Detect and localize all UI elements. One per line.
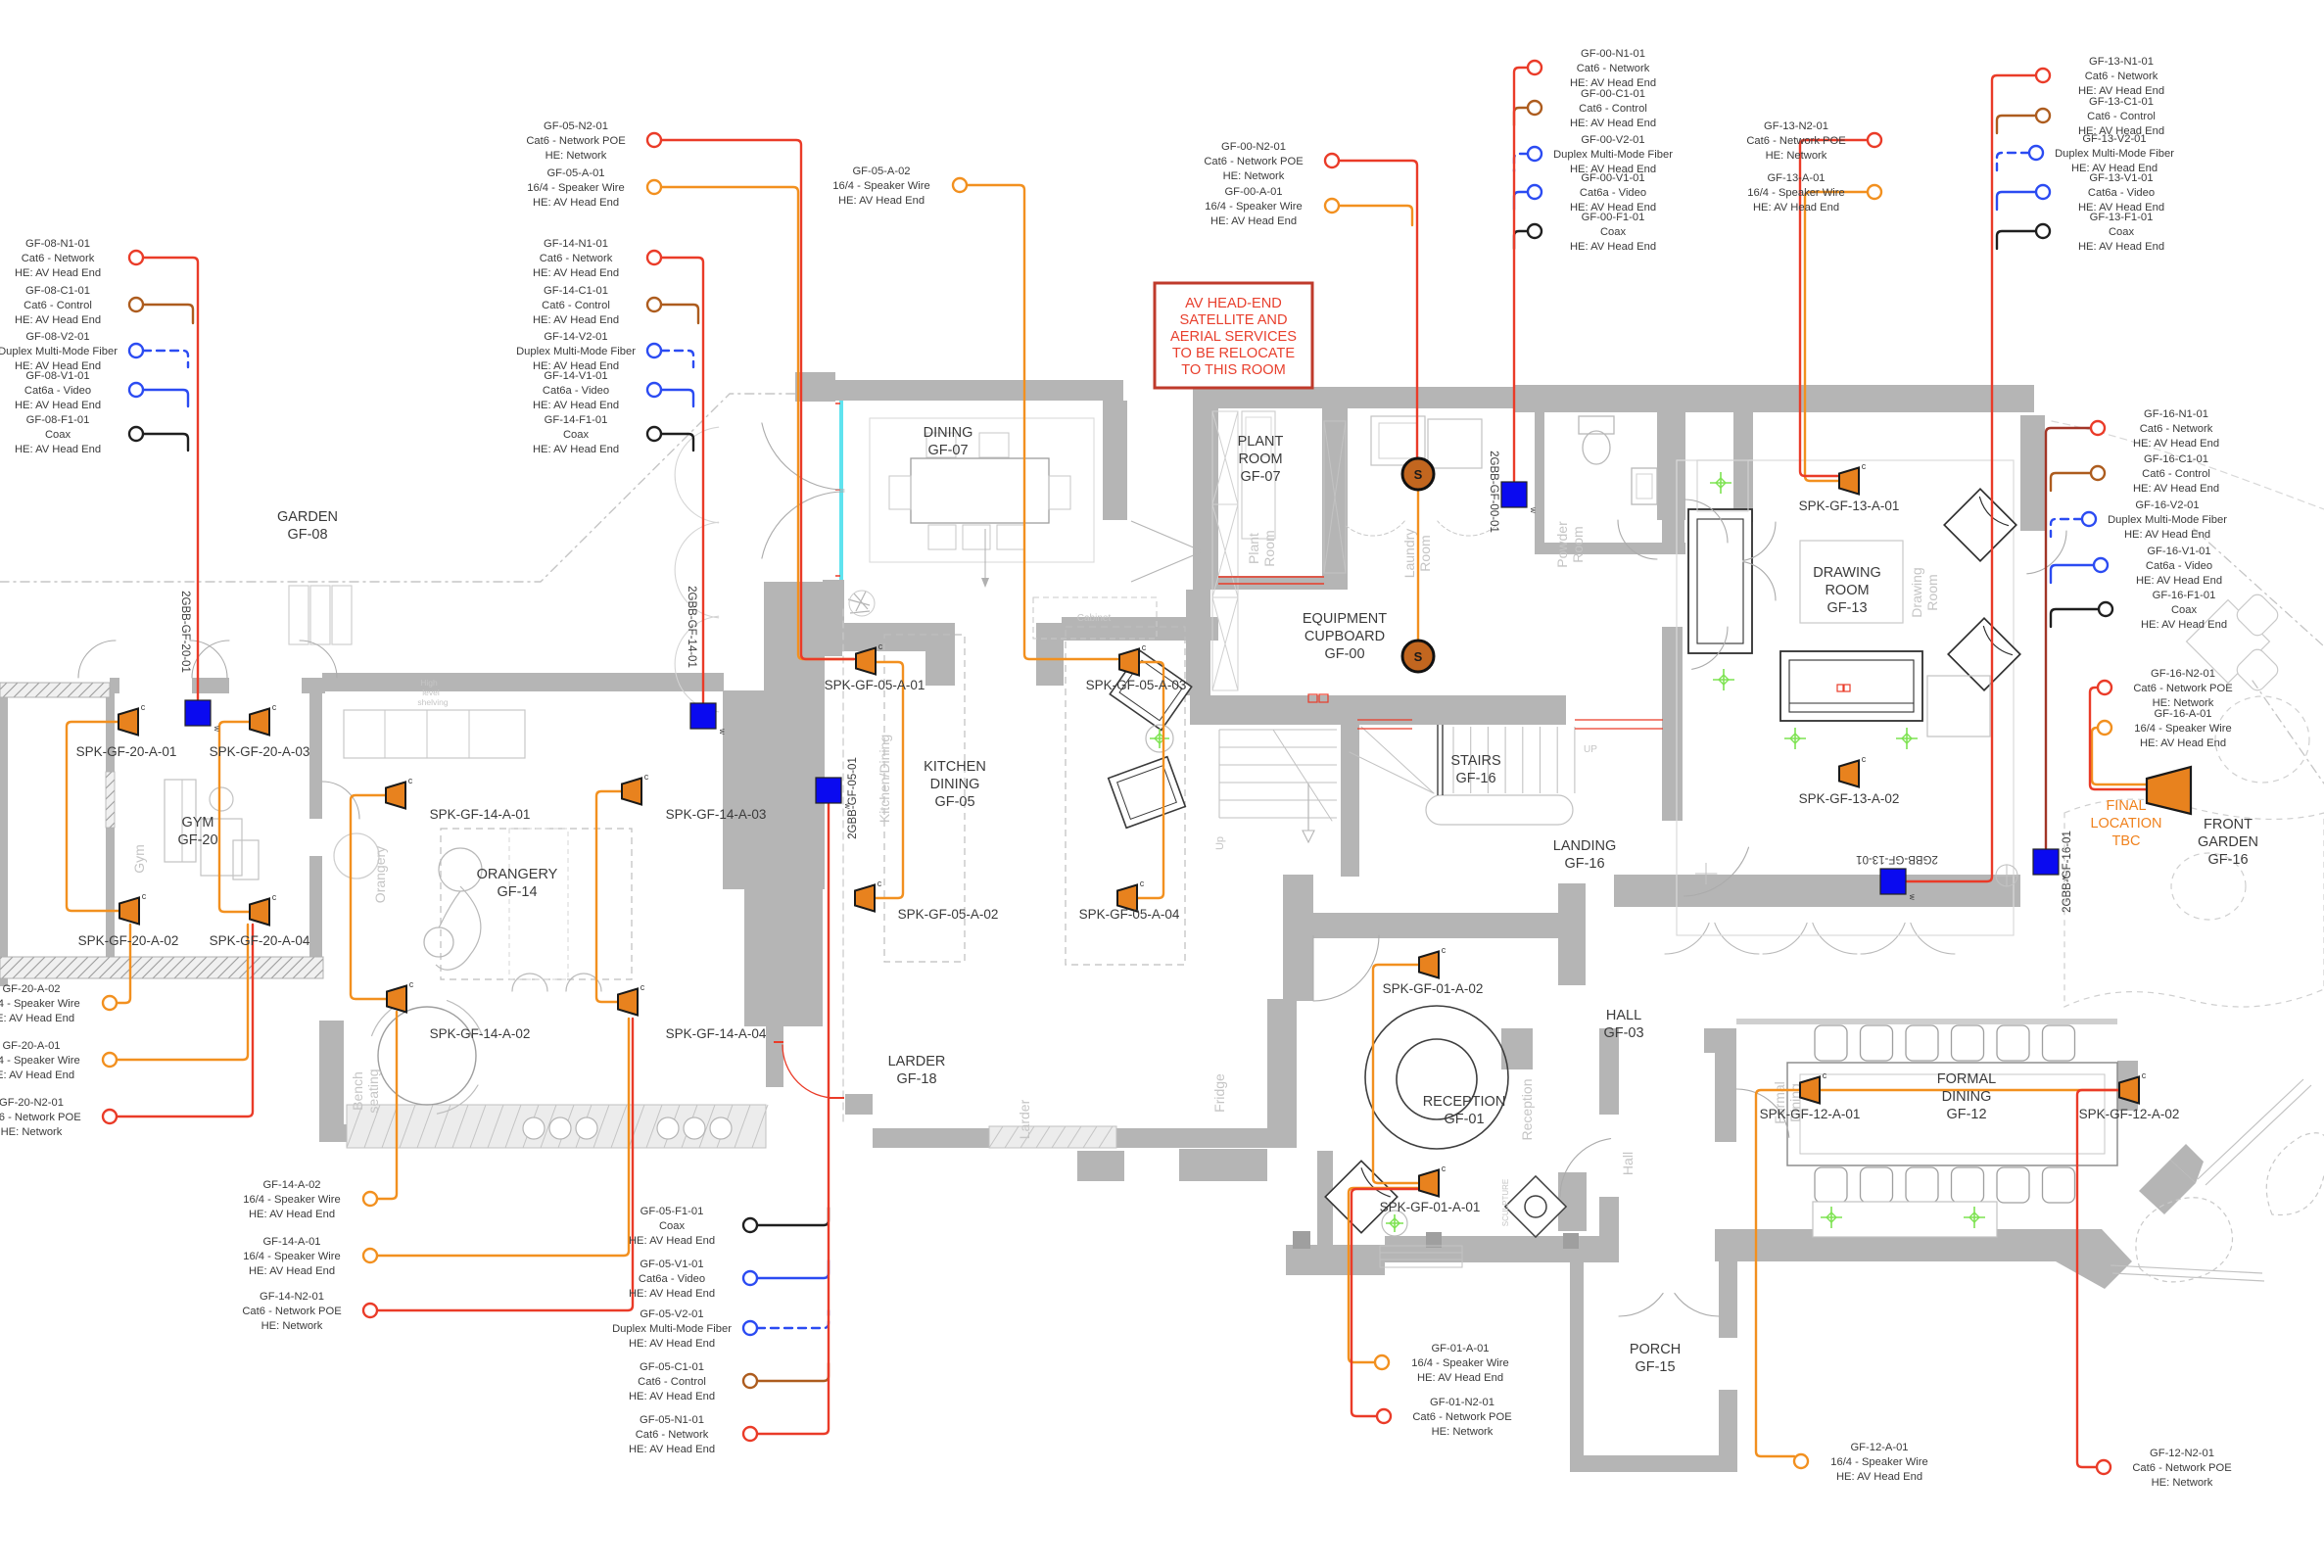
svg-text:HE: Network: HE: Network <box>1432 1426 1494 1438</box>
svg-text:Cat6 - Network: Cat6 - Network <box>2085 71 2158 82</box>
svg-text:GF-12: GF-12 <box>1946 1107 1986 1122</box>
svg-text:HE: Network: HE: Network <box>261 1320 323 1332</box>
svg-text:GF-20-A-01: GF-20-A-01 <box>2 1040 60 1052</box>
svg-text:FORMAL: FORMAL <box>1937 1071 1996 1087</box>
svg-text:DINING: DINING <box>930 777 980 792</box>
svg-text:GF-07: GF-07 <box>927 443 968 458</box>
svg-text:High: High <box>420 678 438 688</box>
svg-text:HE: Network: HE: Network <box>545 150 607 162</box>
svg-text:HE: AV Head End: HE: AV Head End <box>1836 1471 1922 1483</box>
svg-text:HE: Network: HE: Network <box>1 1126 63 1138</box>
svg-text:Plant: Plant <box>1246 533 1261 564</box>
svg-text:Cat6 - Control: Cat6 - Control <box>542 300 610 311</box>
svg-text:SPK-GF-01-A-02: SPK-GF-01-A-02 <box>1383 981 1484 996</box>
svg-text:GF-05-C1-01: GF-05-C1-01 <box>640 1361 704 1373</box>
svg-text:LANDING: LANDING <box>1553 838 1616 854</box>
svg-text:Kitchen/Dining: Kitchen/Dining <box>877 735 892 823</box>
svg-text:2GBB-GF-20-01: 2GBB-GF-20-01 <box>179 591 191 673</box>
svg-text:SPK-GF-05-A-01: SPK-GF-05-A-01 <box>825 678 925 692</box>
svg-text:GF-16: GF-16 <box>1455 771 1495 786</box>
svg-text:w: w <box>1529 506 1538 513</box>
svg-text:LARDER: LARDER <box>888 1054 946 1069</box>
svg-text:SATELLITE AND: SATELLITE AND <box>1179 312 1287 328</box>
svg-text:CUPBOARD: CUPBOARD <box>1304 629 1385 644</box>
svg-text:Cat6a - Video: Cat6a - Video <box>543 385 609 397</box>
svg-text:c: c <box>644 772 649 782</box>
svg-text:GF-14: GF-14 <box>497 884 537 900</box>
svg-text:w: w <box>718 728 727 735</box>
svg-text:GF-14-C1-01: GF-14-C1-01 <box>544 285 608 297</box>
svg-text:Cat6 - Control: Cat6 - Control <box>638 1376 706 1388</box>
svg-text:Bench: Bench <box>350 1071 365 1111</box>
svg-text:w: w <box>1908 893 1917 900</box>
svg-text:HE: AV Head End: HE: AV Head End <box>533 314 619 326</box>
svg-text:HE: AV Head End: HE: AV Head End <box>249 1265 335 1277</box>
svg-text:Hall: Hall <box>1620 1152 1636 1175</box>
svg-text:16/4 - Speaker Wire: 16/4 - Speaker Wire <box>243 1251 341 1262</box>
svg-text:Cat6 - Network POE: Cat6 - Network POE <box>2132 1462 2231 1474</box>
svg-text:shelving: shelving <box>417 697 448 707</box>
svg-text:2GBB-GF-13-01: 2GBB-GF-13-01 <box>1856 853 1938 865</box>
svg-text:HE: AV Head End: HE: AV Head End <box>0 1013 74 1024</box>
svg-text:c: c <box>272 892 277 902</box>
svg-text:HE: AV Head End: HE: AV Head End <box>1753 202 1839 214</box>
svg-text:Laundry: Laundry <box>1401 529 1417 579</box>
svg-text:16/4 - Speaker Wire: 16/4 - Speaker Wire <box>1830 1456 1928 1468</box>
svg-text:DINING: DINING <box>924 425 973 441</box>
svg-text:GF-16-N1-01: GF-16-N1-01 <box>2144 408 2208 420</box>
svg-text:c: c <box>640 982 645 992</box>
svg-text:GF-05-N1-01: GF-05-N1-01 <box>640 1414 704 1426</box>
svg-text:STAIRS: STAIRS <box>1450 753 1500 769</box>
svg-text:AV HEAD-END: AV HEAD-END <box>1185 296 1282 311</box>
svg-text:Cat6 - Network: Cat6 - Network <box>22 253 95 264</box>
svg-text:GF-18: GF-18 <box>896 1071 936 1087</box>
svg-text:GF-13-N2-01: GF-13-N2-01 <box>1764 120 1828 132</box>
svg-text:AERIAL SERVICES: AERIAL SERVICES <box>1170 329 1297 345</box>
svg-text:GF-14-N1-01: GF-14-N1-01 <box>544 238 608 250</box>
svg-text:c: c <box>1442 1164 1447 1173</box>
svg-text:seating: seating <box>365 1069 381 1113</box>
svg-text:GF-13: GF-13 <box>1826 600 1867 616</box>
svg-text:S: S <box>1414 649 1423 664</box>
svg-text:16/4 - Speaker Wire: 16/4 - Speaker Wire <box>2134 723 2232 735</box>
svg-text:GF-00-N2-01: GF-00-N2-01 <box>1221 141 1286 153</box>
svg-text:GARDEN: GARDEN <box>277 509 338 525</box>
svg-text:c: c <box>409 979 414 989</box>
svg-text:GF-05-F1-01: GF-05-F1-01 <box>640 1206 704 1217</box>
svg-text:SPK-GF-05-A-04: SPK-GF-05-A-04 <box>1079 907 1180 922</box>
svg-text:Cat6 - Control: Cat6 - Control <box>2087 111 2156 122</box>
svg-text:GF-16: GF-16 <box>2207 852 2248 868</box>
svg-text:Coax: Coax <box>563 429 590 441</box>
svg-text:TBC: TBC <box>2112 833 2141 849</box>
svg-text:c: c <box>142 891 147 901</box>
svg-text:GF-00-N1-01: GF-00-N1-01 <box>1581 48 1645 60</box>
svg-text:GF-16-C1-01: GF-16-C1-01 <box>2144 453 2208 465</box>
svg-text:GF-16-V2-01: GF-16-V2-01 <box>2135 499 2199 511</box>
svg-text:HE: AV Head End: HE: AV Head End <box>533 400 619 411</box>
svg-text:PLANT: PLANT <box>1238 434 1284 450</box>
svg-text:GF-08-N1-01: GF-08-N1-01 <box>25 238 90 250</box>
svg-text:Cat6a - Video: Cat6a - Video <box>2088 187 2155 199</box>
svg-text:GF-01-A-01: GF-01-A-01 <box>1431 1343 1489 1354</box>
svg-text:16/4 - Speaker Wire: 16/4 - Speaker Wire <box>527 182 625 194</box>
svg-text:Cat6 - Control: Cat6 - Control <box>1579 103 1647 115</box>
svg-text:HE: AV Head End: HE: AV Head End <box>629 1391 715 1402</box>
svg-text:SPK-GF-14-A-01: SPK-GF-14-A-01 <box>430 807 531 822</box>
svg-text:HE: AV Head End: HE: AV Head End <box>1570 241 1656 253</box>
svg-text:GF-14-V1-01: GF-14-V1-01 <box>544 370 607 382</box>
svg-text:HE: AV Head End: HE: AV Head End <box>1210 215 1297 227</box>
svg-text:16/4 - Speaker Wire: 16/4 - Speaker Wire <box>0 998 80 1010</box>
svg-text:Coax: Coax <box>45 429 71 441</box>
svg-text:SPK-GF-14-A-03: SPK-GF-14-A-03 <box>666 807 767 822</box>
svg-text:HE: AV Head End: HE: AV Head End <box>2124 529 2210 541</box>
svg-text:GF-20-A-02: GF-20-A-02 <box>2 983 60 995</box>
svg-text:Cat6a - Video: Cat6a - Video <box>639 1273 705 1285</box>
svg-text:GF-14-F1-01: GF-14-F1-01 <box>545 414 608 426</box>
svg-text:HE: AV Head End: HE: AV Head End <box>629 1235 715 1247</box>
svg-text:c: c <box>1442 945 1447 955</box>
svg-text:HE: AV Head End: HE: AV Head End <box>15 267 101 279</box>
svg-text:HE: AV Head End: HE: AV Head End <box>2133 438 2219 450</box>
svg-text:GF-16-A-01: GF-16-A-01 <box>2154 708 2211 720</box>
svg-text:GF-08-C1-01: GF-08-C1-01 <box>25 285 90 297</box>
svg-text:HE: AV Head End: HE: AV Head End <box>533 444 619 455</box>
svg-text:16/4 - Speaker Wire: 16/4 - Speaker Wire <box>0 1055 80 1067</box>
svg-text:2GBB-GF-00-01: 2GBB-GF-00-01 <box>1488 451 1499 533</box>
svg-text:GF-05-A-02: GF-05-A-02 <box>852 166 910 177</box>
svg-text:EQUIPMENT: EQUIPMENT <box>1303 611 1387 627</box>
svg-text:16/4 - Speaker Wire: 16/4 - Speaker Wire <box>1411 1357 1509 1369</box>
svg-text:GF-00-V1-01: GF-00-V1-01 <box>1581 172 1644 184</box>
svg-text:SPK-GF-01-A-01: SPK-GF-01-A-01 <box>1380 1200 1481 1214</box>
svg-text:ROOM: ROOM <box>1238 451 1282 467</box>
svg-text:GF-15: GF-15 <box>1635 1359 1675 1375</box>
svg-text:SCULPTURE: SCULPTURE <box>1501 1179 1510 1226</box>
svg-text:HE: AV Head End: HE: AV Head End <box>1417 1372 1503 1384</box>
svg-text:Coax: Coax <box>1600 226 1627 238</box>
svg-text:GF-16-V1-01: GF-16-V1-01 <box>2147 546 2210 557</box>
svg-text:HE: AV Head End: HE: AV Head End <box>629 1288 715 1300</box>
svg-text:KITCHEN: KITCHEN <box>924 759 986 775</box>
svg-text:HE: AV Head End: HE: AV Head End <box>1570 118 1656 129</box>
svg-text:GF-20: GF-20 <box>177 832 217 848</box>
svg-text:GF-01: GF-01 <box>1444 1112 1484 1127</box>
svg-text:HE: AV Head End: HE: AV Head End <box>2141 619 2227 631</box>
svg-text:HE: AV Head End: HE: AV Head End <box>2136 575 2222 587</box>
svg-text:SPK-GF-20-A-02: SPK-GF-20-A-02 <box>78 933 179 948</box>
svg-text:Room: Room <box>1261 530 1277 566</box>
svg-text:Room: Room <box>1417 535 1433 571</box>
svg-text:LOCATION: LOCATION <box>2090 816 2161 832</box>
svg-text:GF-13-C1-01: GF-13-C1-01 <box>2089 96 2154 108</box>
svg-text:HE: AV Head End: HE: AV Head End <box>2078 241 2164 253</box>
svg-text:Coax: Coax <box>2171 604 2198 616</box>
svg-text:Cat6a - Video: Cat6a - Video <box>2146 560 2212 572</box>
svg-text:Reception: Reception <box>1519 1078 1535 1140</box>
svg-text:GF-00-V2-01: GF-00-V2-01 <box>1581 134 1644 146</box>
svg-text:HE: AV Head End: HE: AV Head End <box>533 197 619 209</box>
svg-text:SPK-GF-14-A-02: SPK-GF-14-A-02 <box>430 1026 531 1041</box>
svg-text:16/4 - Speaker Wire: 16/4 - Speaker Wire <box>1205 201 1303 213</box>
svg-text:c: c <box>2142 1070 2147 1080</box>
svg-text:GARDEN: GARDEN <box>2198 834 2258 850</box>
svg-text:Cat6 - Network: Cat6 - Network <box>1577 63 1650 74</box>
svg-text:SPK-GF-20-A-01: SPK-GF-20-A-01 <box>76 744 177 759</box>
svg-text:c: c <box>408 776 413 785</box>
svg-text:Cat6 - Network: Cat6 - Network <box>636 1429 709 1441</box>
svg-text:Larder: Larder <box>1017 1099 1032 1139</box>
svg-text:Room: Room <box>1570 526 1586 562</box>
svg-text:GF-16: GF-16 <box>1564 856 1604 872</box>
svg-text:DINING: DINING <box>1942 1089 1992 1105</box>
svg-text:HE: AV Head End: HE: AV Head End <box>15 400 101 411</box>
svg-text:DRAWING: DRAWING <box>1813 565 1881 581</box>
svg-text:c: c <box>1140 879 1145 888</box>
svg-text:SPK-GF-05-A-03: SPK-GF-05-A-03 <box>1086 678 1187 692</box>
svg-text:FRONT: FRONT <box>2204 817 2253 832</box>
svg-text:FINAL: FINAL <box>2106 798 2146 814</box>
svg-text:16/4 - Speaker Wire: 16/4 - Speaker Wire <box>243 1194 341 1206</box>
svg-text:RECEPTION: RECEPTION <box>1423 1094 1506 1110</box>
svg-text:16/4 - Speaker Wire: 16/4 - Speaker Wire <box>1747 187 1845 199</box>
svg-text:Cat6 - Control: Cat6 - Control <box>2142 468 2210 480</box>
svg-text:Duplex Multi-Mode Fiber: Duplex Multi-Mode Fiber <box>2108 514 2227 526</box>
svg-text:GF-05-V2-01: GF-05-V2-01 <box>640 1308 703 1320</box>
svg-text:Cat6 - Network POE: Cat6 - Network POE <box>2133 683 2232 694</box>
svg-text:2GBB-GF-16-01: 2GBB-GF-16-01 <box>2062 831 2073 913</box>
svg-text:SPK-GF-13-A-01: SPK-GF-13-A-01 <box>1799 499 1900 513</box>
svg-text:c: c <box>877 879 882 888</box>
svg-text:Cat6 - Network POE: Cat6 - Network POE <box>1746 135 1845 147</box>
svg-text:GF-14-V2-01: GF-14-V2-01 <box>544 331 607 343</box>
svg-text:Cat6 - Control: Cat6 - Control <box>24 300 92 311</box>
svg-text:GF-03: GF-03 <box>1603 1025 1643 1041</box>
svg-text:GF-13-V2-01: GF-13-V2-01 <box>2082 133 2146 145</box>
svg-text:GF-08-V1-01: GF-08-V1-01 <box>25 370 89 382</box>
svg-text:GYM: GYM <box>181 815 213 831</box>
svg-text:Up: Up <box>1214 836 1226 850</box>
svg-text:HE: AV Head End: HE: AV Head End <box>249 1209 335 1220</box>
svg-text:HE: AV Head End: HE: AV Head End <box>629 1444 715 1455</box>
svg-text:GF-13-V1-01: GF-13-V1-01 <box>2089 172 2153 184</box>
svg-text:w: w <box>213 725 221 732</box>
svg-text:Cat6 - Network POE: Cat6 - Network POE <box>242 1306 341 1317</box>
svg-text:Powder: Powder <box>1554 521 1570 568</box>
svg-text:GF-16-F1-01: GF-16-F1-01 <box>2153 590 2216 601</box>
svg-text:GF-14-A-01: GF-14-A-01 <box>262 1236 320 1248</box>
svg-text:GF-08-F1-01: GF-08-F1-01 <box>26 414 90 426</box>
svg-text:Coax: Coax <box>659 1220 686 1232</box>
svg-text:Duplex Multi-Mode Fiber: Duplex Multi-Mode Fiber <box>516 346 636 357</box>
svg-text:c: c <box>1142 642 1147 652</box>
svg-text:GF-13-A-01: GF-13-A-01 <box>1767 172 1825 184</box>
svg-text:c: c <box>1823 1070 1827 1080</box>
svg-text:level: level <box>422 688 440 697</box>
svg-text:GF-01-N2-01: GF-01-N2-01 <box>1430 1397 1494 1408</box>
svg-text:GF-00-F1-01: GF-00-F1-01 <box>1582 212 1645 223</box>
svg-text:SPK-GF-12-A-02: SPK-GF-12-A-02 <box>2079 1107 2180 1121</box>
svg-text:GF-08: GF-08 <box>287 527 327 543</box>
svg-text:Cat6 - Network: Cat6 - Network <box>540 253 613 264</box>
svg-text:SPK-GF-13-A-02: SPK-GF-13-A-02 <box>1799 791 1900 806</box>
svg-text:HE: AV Head End: HE: AV Head End <box>838 195 925 207</box>
svg-text:HE: AV Head End: HE: AV Head End <box>533 267 619 279</box>
svg-text:GF-05-A-01: GF-05-A-01 <box>546 167 604 179</box>
svg-text:GF-14-N2-01: GF-14-N2-01 <box>260 1291 324 1303</box>
svg-text:c: c <box>1862 461 1867 471</box>
svg-text:Duplex Multi-Mode Fiber: Duplex Multi-Mode Fiber <box>1553 149 1673 161</box>
svg-text:GF-05-V1-01: GF-05-V1-01 <box>640 1259 703 1270</box>
svg-text:SPK-GF-20-A-04: SPK-GF-20-A-04 <box>210 933 310 948</box>
svg-text:Cat6a - Video: Cat6a - Video <box>24 385 91 397</box>
svg-text:GF-05-N2-01: GF-05-N2-01 <box>544 120 608 132</box>
svg-text:SPK-GF-05-A-02: SPK-GF-05-A-02 <box>898 907 999 922</box>
svg-text:GF-14-A-02: GF-14-A-02 <box>262 1179 320 1191</box>
svg-text:HE: AV Head End: HE: AV Head End <box>2133 483 2219 495</box>
svg-text:GF-16-N2-01: GF-16-N2-01 <box>2151 668 2215 680</box>
svg-text:2GBB-GF-14-01: 2GBB-GF-14-01 <box>686 586 697 668</box>
svg-text:c: c <box>1862 754 1867 764</box>
svg-text:HE: AV Head End: HE: AV Head End <box>15 444 101 455</box>
svg-text:Cabinet: Cabinet <box>1077 613 1112 624</box>
svg-text:HE: Network: HE: Network <box>1223 170 1285 182</box>
svg-text:SPK-GF-20-A-03: SPK-GF-20-A-03 <box>210 744 310 759</box>
svg-text:TO BE RELOCATE: TO BE RELOCATE <box>1172 346 1295 361</box>
svg-text:GF-00-A-01: GF-00-A-01 <box>1224 186 1282 198</box>
svg-text:c: c <box>141 702 146 712</box>
svg-text:Room: Room <box>1924 574 1940 610</box>
svg-text:Coax: Coax <box>2109 226 2135 238</box>
svg-text:16/4 - Speaker Wire: 16/4 - Speaker Wire <box>832 180 930 192</box>
svg-text:HE: AV Head End: HE: AV Head End <box>2140 737 2226 749</box>
svg-text:Duplex Multi-Mode Fiber: Duplex Multi-Mode Fiber <box>2055 148 2174 160</box>
svg-text:GF-20-N2-01: GF-20-N2-01 <box>0 1097 64 1109</box>
svg-text:Duplex Multi-Mode Fiber: Duplex Multi-Mode Fiber <box>0 346 118 357</box>
svg-text:HE: AV Head End: HE: AV Head End <box>629 1338 715 1350</box>
svg-text:Orangery: Orangery <box>372 846 388 903</box>
svg-text:SPK-GF-12-A-01: SPK-GF-12-A-01 <box>1760 1107 1861 1121</box>
svg-text:ORANGERY: ORANGERY <box>477 867 558 882</box>
svg-text:GF-13-N1-01: GF-13-N1-01 <box>2089 56 2154 68</box>
svg-text:UP: UP <box>1584 744 1597 755</box>
svg-text:Cat6 - Network POE: Cat6 - Network POE <box>0 1112 81 1123</box>
svg-text:Gym: Gym <box>131 844 147 874</box>
svg-text:GF-12-N2-01: GF-12-N2-01 <box>2150 1448 2214 1459</box>
svg-text:GF-13-F1-01: GF-13-F1-01 <box>2090 212 2154 223</box>
svg-text:GF-00: GF-00 <box>1324 646 1364 662</box>
svg-text:TO THIS ROOM: TO THIS ROOM <box>1181 362 1286 378</box>
svg-text:Cat6 - Network POE: Cat6 - Network POE <box>1412 1411 1511 1423</box>
svg-text:SPK-GF-14-A-04: SPK-GF-14-A-04 <box>666 1026 767 1041</box>
svg-text:PORCH: PORCH <box>1630 1342 1681 1357</box>
svg-text:GF-00-C1-01: GF-00-C1-01 <box>1581 88 1645 100</box>
svg-text:2GBB-GF-05-01: 2GBB-GF-05-01 <box>847 757 859 839</box>
svg-text:ROOM: ROOM <box>1825 583 1869 598</box>
svg-text:S: S <box>1414 467 1423 482</box>
svg-text:Cat6a - Video: Cat6a - Video <box>1580 187 1646 199</box>
svg-text:GF-07: GF-07 <box>1240 469 1280 485</box>
svg-text:Cat6 - Network POE: Cat6 - Network POE <box>1204 156 1303 167</box>
svg-text:Duplex Multi-Mode Fiber: Duplex Multi-Mode Fiber <box>612 1323 732 1335</box>
svg-text:Fridge: Fridge <box>1211 1073 1227 1113</box>
svg-text:GF-05: GF-05 <box>934 794 974 810</box>
svg-text:c: c <box>272 702 277 712</box>
svg-text:Drawing: Drawing <box>1909 567 1924 617</box>
svg-text:HALL: HALL <box>1606 1008 1641 1023</box>
svg-text:GF-12-A-01: GF-12-A-01 <box>1850 1442 1908 1453</box>
svg-text:HE: Network: HE: Network <box>1766 150 1827 162</box>
svg-text:GF-08-V2-01: GF-08-V2-01 <box>25 331 89 343</box>
svg-text:HE: AV Head End: HE: AV Head End <box>15 314 101 326</box>
svg-text:Cat6 - Network: Cat6 - Network <box>2140 423 2213 435</box>
svg-text:Cat6 - Network POE: Cat6 - Network POE <box>526 135 625 147</box>
svg-text:HE: AV Head End: HE: AV Head End <box>0 1069 74 1081</box>
svg-text:HE: Network: HE: Network <box>2152 1477 2213 1489</box>
svg-text:c: c <box>878 641 883 651</box>
